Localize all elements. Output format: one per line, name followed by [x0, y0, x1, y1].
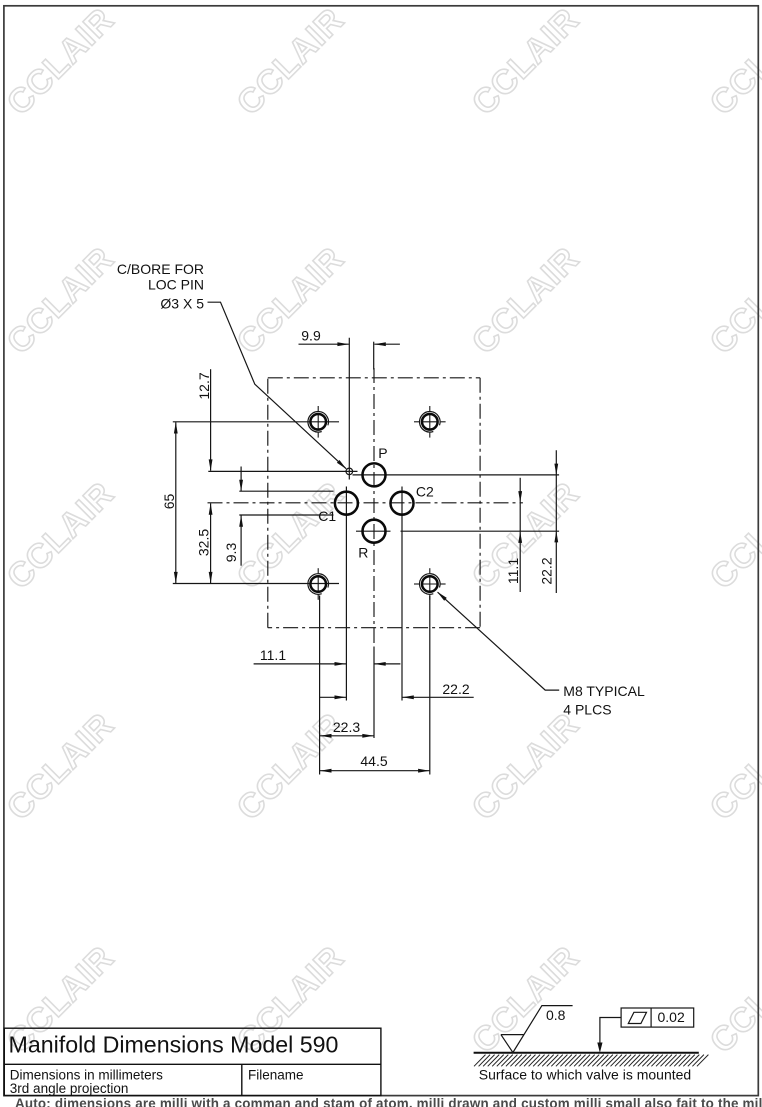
svg-text:LOC PIN: LOC PIN [148, 277, 204, 293]
svg-text:Manifold Dimensions Model 590: Manifold Dimensions Model 590 [9, 1031, 339, 1057]
svg-text:32.5: 32.5 [195, 529, 211, 556]
svg-text:44.5: 44.5 [360, 753, 387, 769]
svg-text:Auto: dimensions are milli wit: Auto: dimensions are milli with a comman… [15, 1096, 762, 1107]
svg-text:22.2: 22.2 [442, 681, 469, 697]
svg-text:Filename: Filename [248, 1067, 304, 1082]
svg-text:M8 TYPICAL: M8 TYPICAL [563, 683, 645, 699]
svg-text:Ø3 X 5: Ø3 X 5 [160, 295, 204, 311]
svg-text:Surface to which valve is moun: Surface to which valve is mounted [479, 1066, 691, 1082]
svg-text:12.7: 12.7 [196, 372, 212, 399]
svg-text:0.02: 0.02 [658, 1009, 685, 1025]
svg-text:C1: C1 [318, 508, 336, 524]
svg-text:0.8: 0.8 [546, 1007, 566, 1023]
svg-text:22.3: 22.3 [333, 719, 360, 735]
svg-text:11.1: 11.1 [260, 647, 286, 663]
svg-text:P: P [378, 445, 387, 461]
svg-text:11.1: 11.1 [505, 558, 521, 584]
svg-text:9.9: 9.9 [301, 327, 321, 343]
svg-text:3rd angle projection: 3rd angle projection [10, 1081, 129, 1096]
svg-text:9.3: 9.3 [223, 543, 239, 563]
svg-text:C/BORE FOR: C/BORE FOR [117, 261, 204, 277]
svg-text:22.2: 22.2 [539, 557, 555, 584]
svg-text:C2: C2 [416, 483, 434, 499]
svg-text:R: R [358, 545, 368, 561]
svg-text:65: 65 [161, 494, 177, 510]
svg-text:4 PLCS: 4 PLCS [563, 702, 611, 718]
